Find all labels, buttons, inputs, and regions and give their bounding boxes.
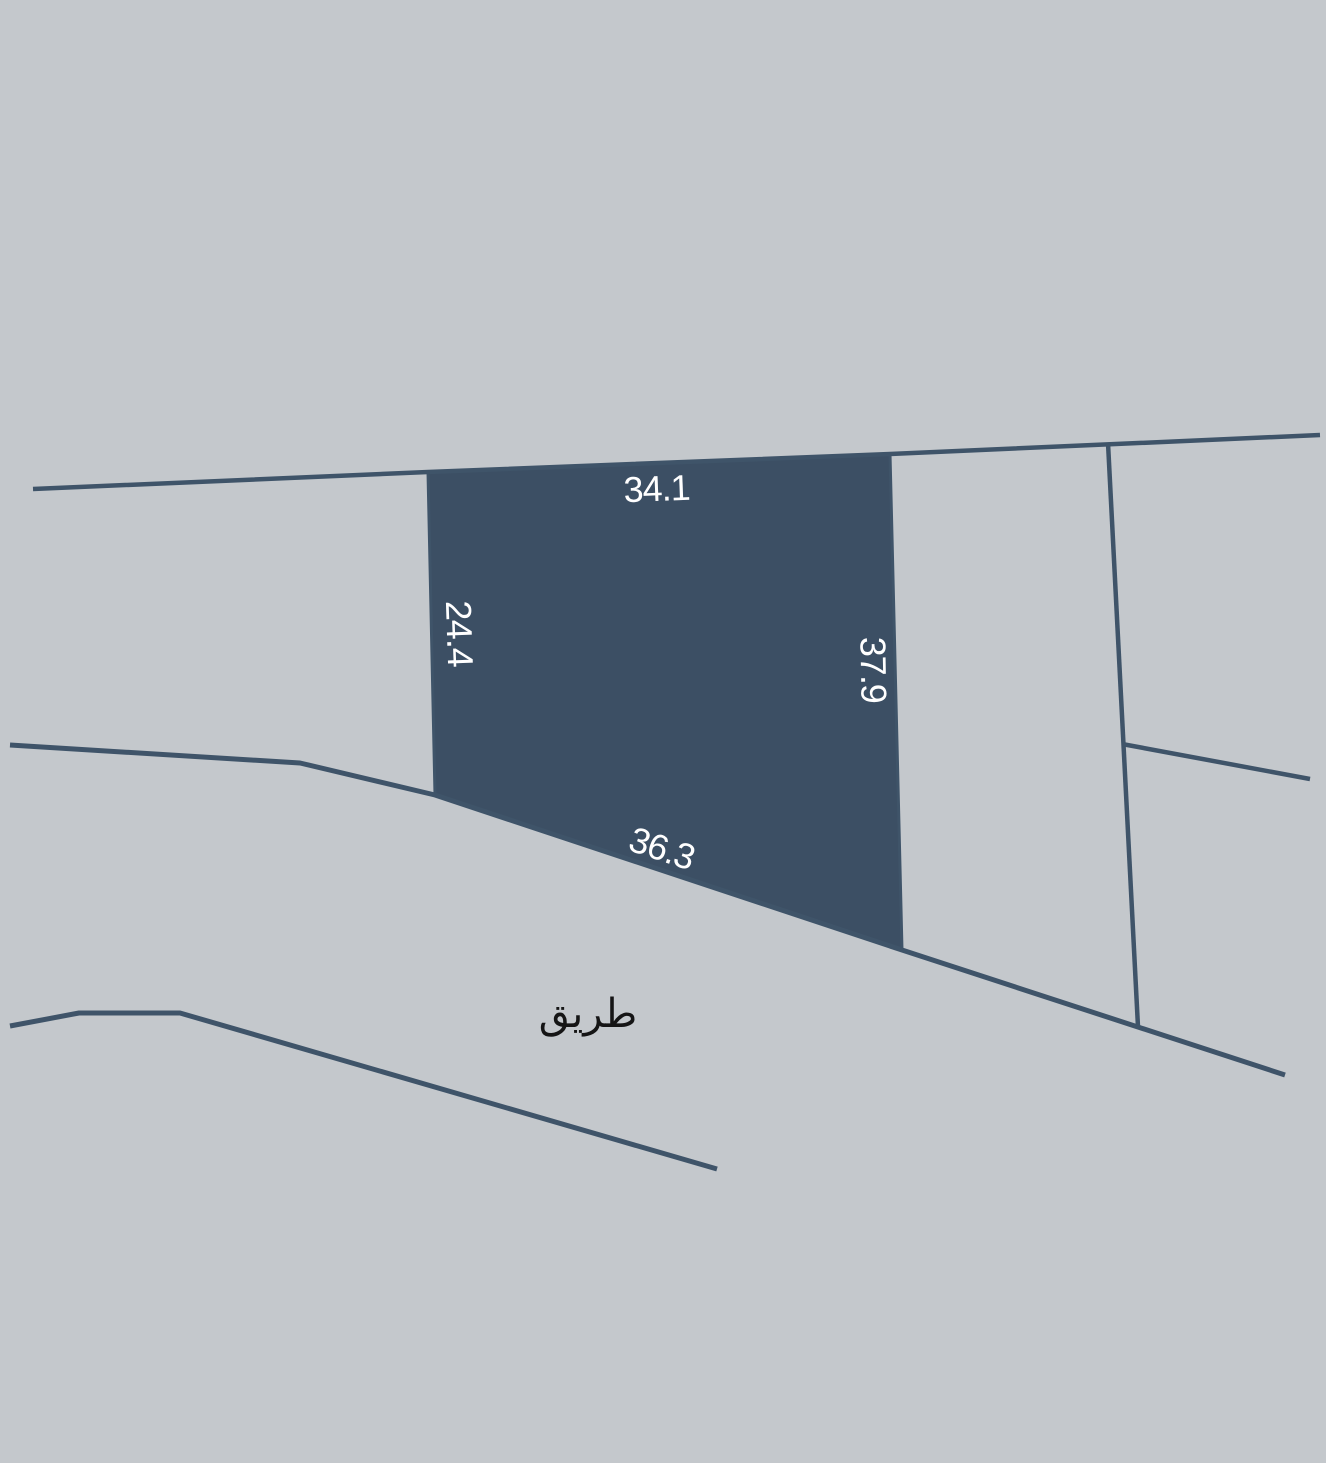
road-label: طريق — [539, 991, 637, 1037]
map-canvas[interactable]: 34.1 24.4 37.9 36.3 طريق — [0, 0, 1326, 1463]
dimension-label-top: 34.1 — [623, 467, 691, 511]
cadastral-map[interactable]: 34.1 24.4 37.9 36.3 طريق — [0, 0, 1326, 1463]
dimension-label-left: 24.4 — [438, 600, 481, 667]
dimension-label-right: 37.9 — [852, 636, 894, 703]
